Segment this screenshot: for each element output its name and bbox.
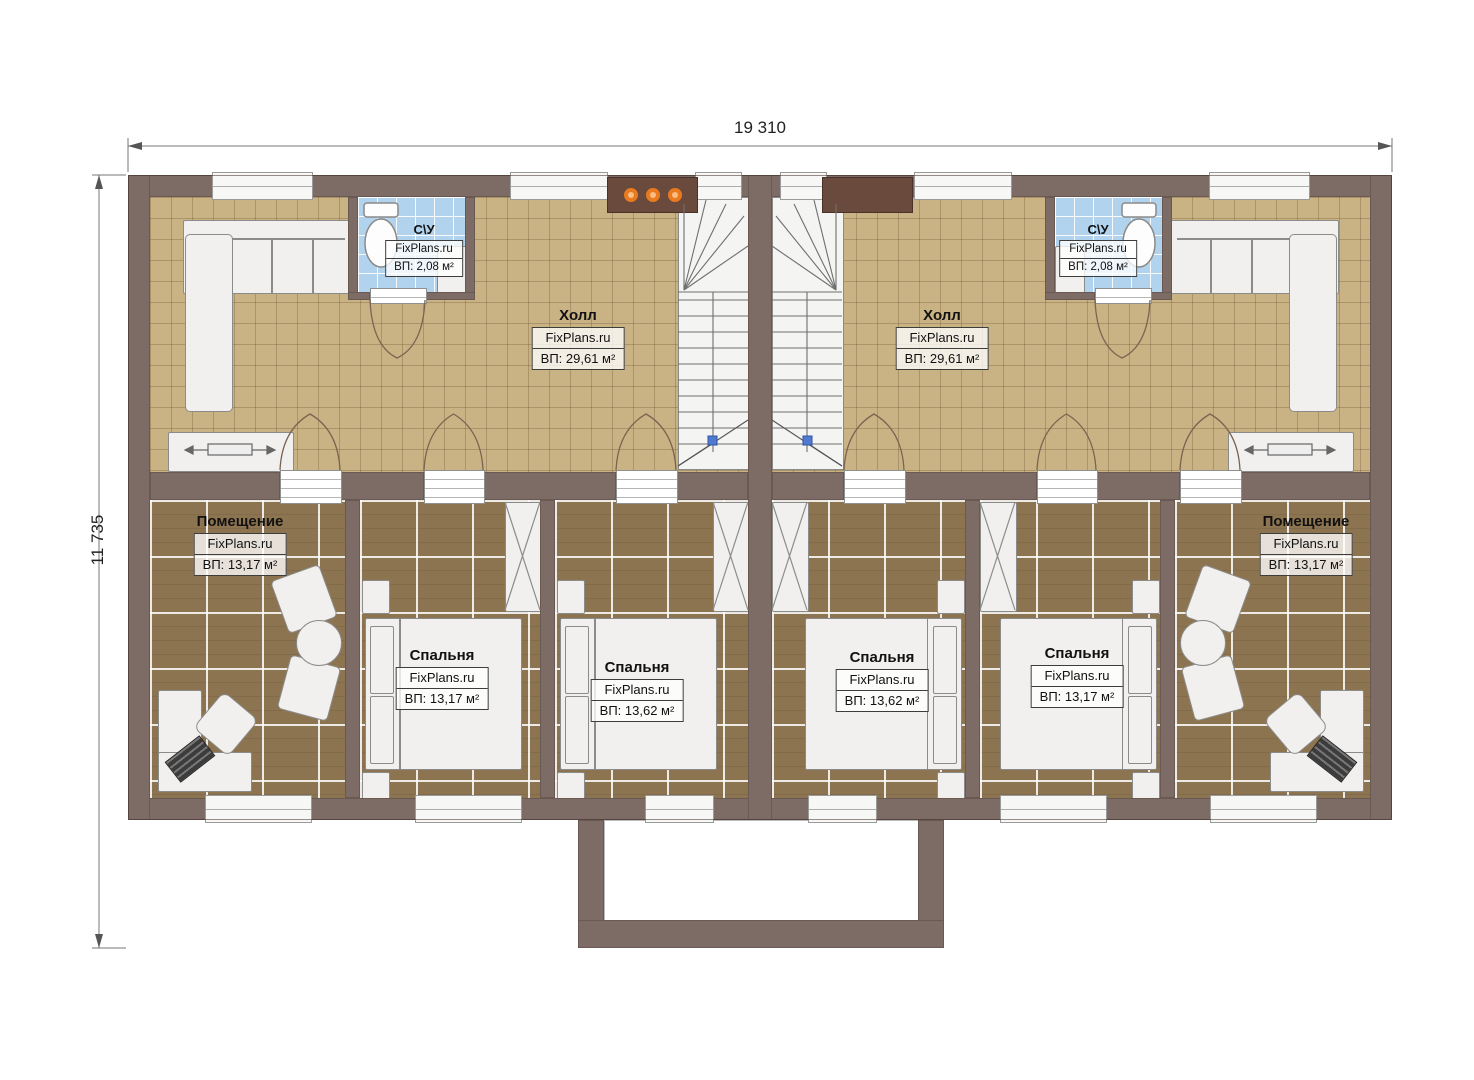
porch-interior <box>604 820 920 922</box>
watermark: FixPlans.ru <box>837 670 928 691</box>
room-label-bedroom-3: Спальня FixPlans.ru ВП: 13,62 м² <box>836 648 929 712</box>
wall-partition <box>1160 500 1175 798</box>
staircase-right <box>772 197 844 470</box>
sofa-left-chaise <box>185 234 233 412</box>
room-label-bedroom-4: Спальня FixPlans.ru ВП: 13,17 м² <box>1031 644 1124 708</box>
sofa-back-line <box>1177 238 1292 240</box>
watermark: FixPlans.ru <box>386 241 462 259</box>
window-bottom <box>645 795 714 823</box>
sofa-divider <box>271 238 273 293</box>
sofa-divider <box>1251 238 1253 293</box>
room-label-utility-right: Помещение FixPlans.ru ВП: 13,17 м² <box>1260 512 1353 576</box>
nightstand <box>1132 772 1160 800</box>
wall-partition <box>965 500 980 798</box>
wall-middle <box>483 472 616 500</box>
room-label-bath-right: С\У FixPlans.ru ВП: 2,08 м² <box>1059 222 1137 277</box>
nightstand <box>362 772 390 800</box>
window-top <box>914 172 1012 200</box>
window-top <box>510 172 608 200</box>
door-bath-right <box>1095 288 1152 304</box>
watermark: FixPlans.ru <box>533 328 624 349</box>
wall-bath <box>425 292 475 300</box>
wall-left <box>128 175 150 820</box>
wall-bath <box>1045 292 1095 300</box>
nightstand <box>937 772 965 800</box>
window-top <box>780 172 827 200</box>
wall-bath <box>1045 197 1055 300</box>
wall-bath <box>1150 292 1172 300</box>
wall-middle <box>1096 472 1180 500</box>
wall-partition <box>540 500 555 798</box>
watermark: FixPlans.ru <box>1261 534 1352 555</box>
wall-center <box>748 175 772 820</box>
wall-bath <box>348 197 358 300</box>
window-bottom <box>1210 795 1317 823</box>
room-label-bedroom-1: Спальня FixPlans.ru ВП: 13,17 м² <box>396 646 489 710</box>
wall-partition <box>345 500 360 798</box>
pillow <box>370 696 394 764</box>
window-bottom <box>808 795 877 823</box>
wardrobe-4 <box>980 502 1017 612</box>
pillow <box>565 626 589 694</box>
watermark: FixPlans.ru <box>1060 241 1136 259</box>
nightstand <box>362 580 390 614</box>
room-label-bedroom-2: Спальня FixPlans.ru ВП: 13,62 м² <box>591 658 684 722</box>
wall-middle <box>340 472 424 500</box>
nightstand <box>1132 580 1160 614</box>
door-bedroom-2 <box>616 470 678 504</box>
wall-bath <box>1162 197 1172 300</box>
sideboard-left <box>168 432 294 472</box>
floor-plan: 19 310 11 735 Холл FixPlans.ru ВП: 29,61… <box>0 0 1474 1080</box>
window-top <box>695 172 742 200</box>
dimension-width-label: 19 310 <box>700 118 820 138</box>
door-bedroom-1 <box>424 470 485 504</box>
wardrobe-3 <box>772 502 809 612</box>
door-bedroom-4 <box>1037 470 1098 504</box>
window-top <box>212 172 313 200</box>
window-top <box>1209 172 1310 200</box>
nightstand <box>937 580 965 614</box>
window-bottom <box>415 795 522 823</box>
sideboard-right <box>1228 432 1354 472</box>
nightstand <box>557 580 585 614</box>
pillow <box>1128 696 1152 764</box>
pillow <box>1128 626 1152 694</box>
coffee-table-left <box>296 620 342 666</box>
staircase-left <box>678 197 750 470</box>
window-bottom <box>1000 795 1107 823</box>
pillow <box>933 696 957 764</box>
wall-middle <box>772 472 844 500</box>
wall-middle <box>904 472 1037 500</box>
wall-middle <box>150 472 280 500</box>
door-utility-left <box>280 470 342 504</box>
sofa-divider <box>1210 238 1212 293</box>
sofa-right-chaise <box>1289 234 1337 412</box>
watermark: FixPlans.ru <box>397 668 488 689</box>
door-utility-right <box>1180 470 1242 504</box>
wall-middle <box>676 472 748 500</box>
watermark: FixPlans.ru <box>1032 666 1123 687</box>
window-bottom <box>205 795 312 823</box>
wardrobe-2 <box>713 502 750 612</box>
coffee-table-right <box>1180 620 1226 666</box>
watermark: FixPlans.ru <box>592 680 683 701</box>
watermark: FixPlans.ru <box>195 534 286 555</box>
porch-wall-bottom <box>578 920 944 948</box>
room-label-bath-left: С\У FixPlans.ru ВП: 2,08 м² <box>385 222 463 277</box>
wall-panel-lights <box>607 177 698 213</box>
wall-middle <box>1240 472 1370 500</box>
wall-panel <box>822 177 913 213</box>
nightstand <box>557 772 585 800</box>
dimension-height-label: 11 735 <box>88 480 108 600</box>
door-bath-left <box>370 288 427 304</box>
wall-bath <box>465 197 475 300</box>
pillow <box>933 626 957 694</box>
room-label-utility-left: Помещение FixPlans.ru ВП: 13,17 м² <box>194 512 287 576</box>
door-bedroom-3 <box>844 470 906 504</box>
room-label-hall-left: Холл FixPlans.ru ВП: 29,61 м² <box>532 306 625 370</box>
sofa-divider <box>312 238 314 293</box>
pillow <box>565 696 589 764</box>
wall-right <box>1370 175 1392 820</box>
room-label-hall-right: Холл FixPlans.ru ВП: 29,61 м² <box>896 306 989 370</box>
wall-bath <box>348 292 370 300</box>
wardrobe-1 <box>505 502 542 612</box>
watermark: FixPlans.ru <box>897 328 988 349</box>
sofa-back-line <box>230 238 345 240</box>
pillow <box>370 626 394 694</box>
